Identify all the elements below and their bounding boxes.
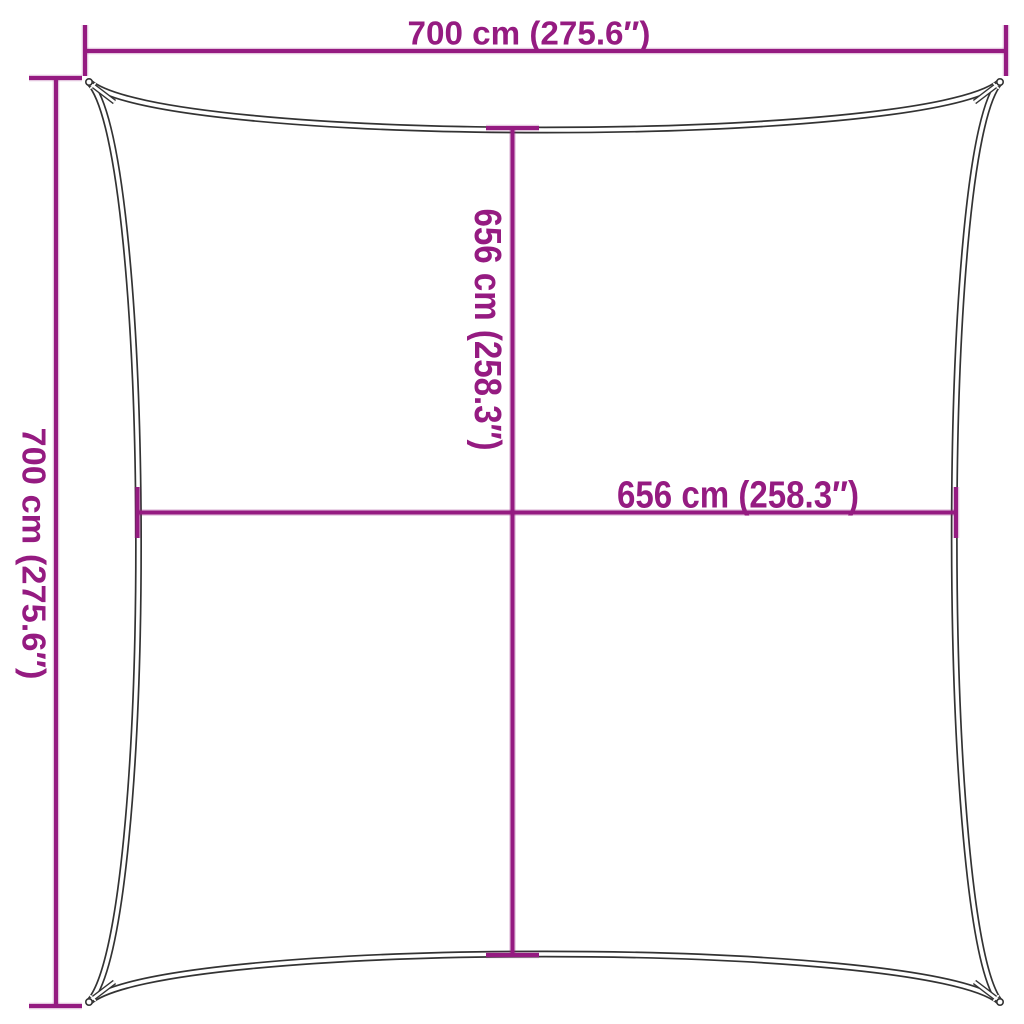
- svg-text:656 cm (258.3″): 656 cm (258.3″): [617, 475, 859, 517]
- svg-text:700 cm (275.6″): 700 cm (275.6″): [408, 15, 651, 52]
- svg-text:656 cm (258.3″): 656 cm (258.3″): [466, 209, 508, 451]
- svg-text:700 cm (275.6″): 700 cm (275.6″): [15, 428, 52, 680]
